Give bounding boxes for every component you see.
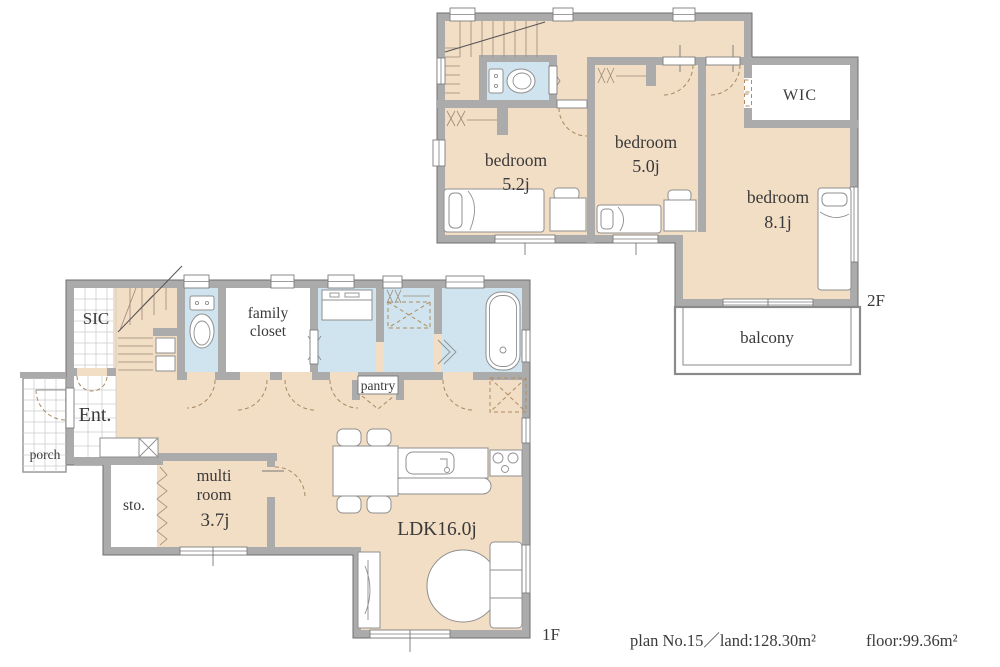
bed-icon-50 — [597, 205, 661, 233]
floor-1f: SIC Ent. porch family closet pantry sto.… — [20, 266, 560, 652]
porch-label: porch — [30, 447, 61, 462]
bedroom-81-name: bedroom — [747, 187, 810, 207]
entrance-label: Ent. — [79, 404, 112, 426]
bedroom-52-name: bedroom — [485, 150, 548, 170]
storage-label: sto. — [123, 497, 145, 514]
bed-icon-52 — [444, 189, 544, 232]
multi-room-line2: room — [197, 485, 232, 504]
bedroom-50-size: 5.0j — [632, 156, 660, 176]
floor-area-text: floor:99.36m² — [866, 631, 958, 650]
family-closet-line1: family — [248, 305, 289, 322]
footer: plan No.15／land:128.30m² floor:99.36m² — [630, 631, 958, 650]
round-table-icon — [427, 550, 499, 622]
ldk-label: LDK16.0j — [397, 519, 477, 540]
balcony-label: balcony — [740, 328, 794, 347]
bedroom-52-size: 5.2j — [502, 174, 530, 194]
tv-board-icon — [358, 552, 380, 628]
floor-label-1f: 1F — [542, 625, 560, 644]
family-closet-line2: closet — [250, 323, 287, 340]
toilet-icon-1f — [190, 296, 214, 348]
bed-icon-81 — [818, 188, 851, 290]
washbasin-icon — [322, 290, 372, 320]
bedroom-81-size: 8.1j — [764, 212, 792, 232]
bedroom-50-name: bedroom — [615, 132, 678, 152]
floor-label-2f: 2F — [867, 291, 885, 310]
sic-label: SIC — [83, 309, 109, 328]
multi-room-line1: multi — [197, 466, 232, 485]
sofa-icon — [490, 542, 522, 628]
stove-icon — [490, 450, 522, 476]
floor-plan-page: bedroom 5.2j bedroom 5.0j bedroom 8.1j W… — [0, 0, 1000, 667]
plan-info-text: plan No.15／land:128.30m² — [630, 631, 816, 650]
shoe-cabinet-icon — [100, 438, 158, 457]
pantry-label: pantry — [361, 378, 396, 393]
floor-plan-canvas: bedroom 5.2j bedroom 5.0j bedroom 8.1j W… — [0, 0, 1000, 667]
multi-room-size: 3.7j — [200, 510, 229, 531]
wic-label: WIC — [783, 87, 817, 104]
desk-icon-50 — [664, 190, 696, 231]
